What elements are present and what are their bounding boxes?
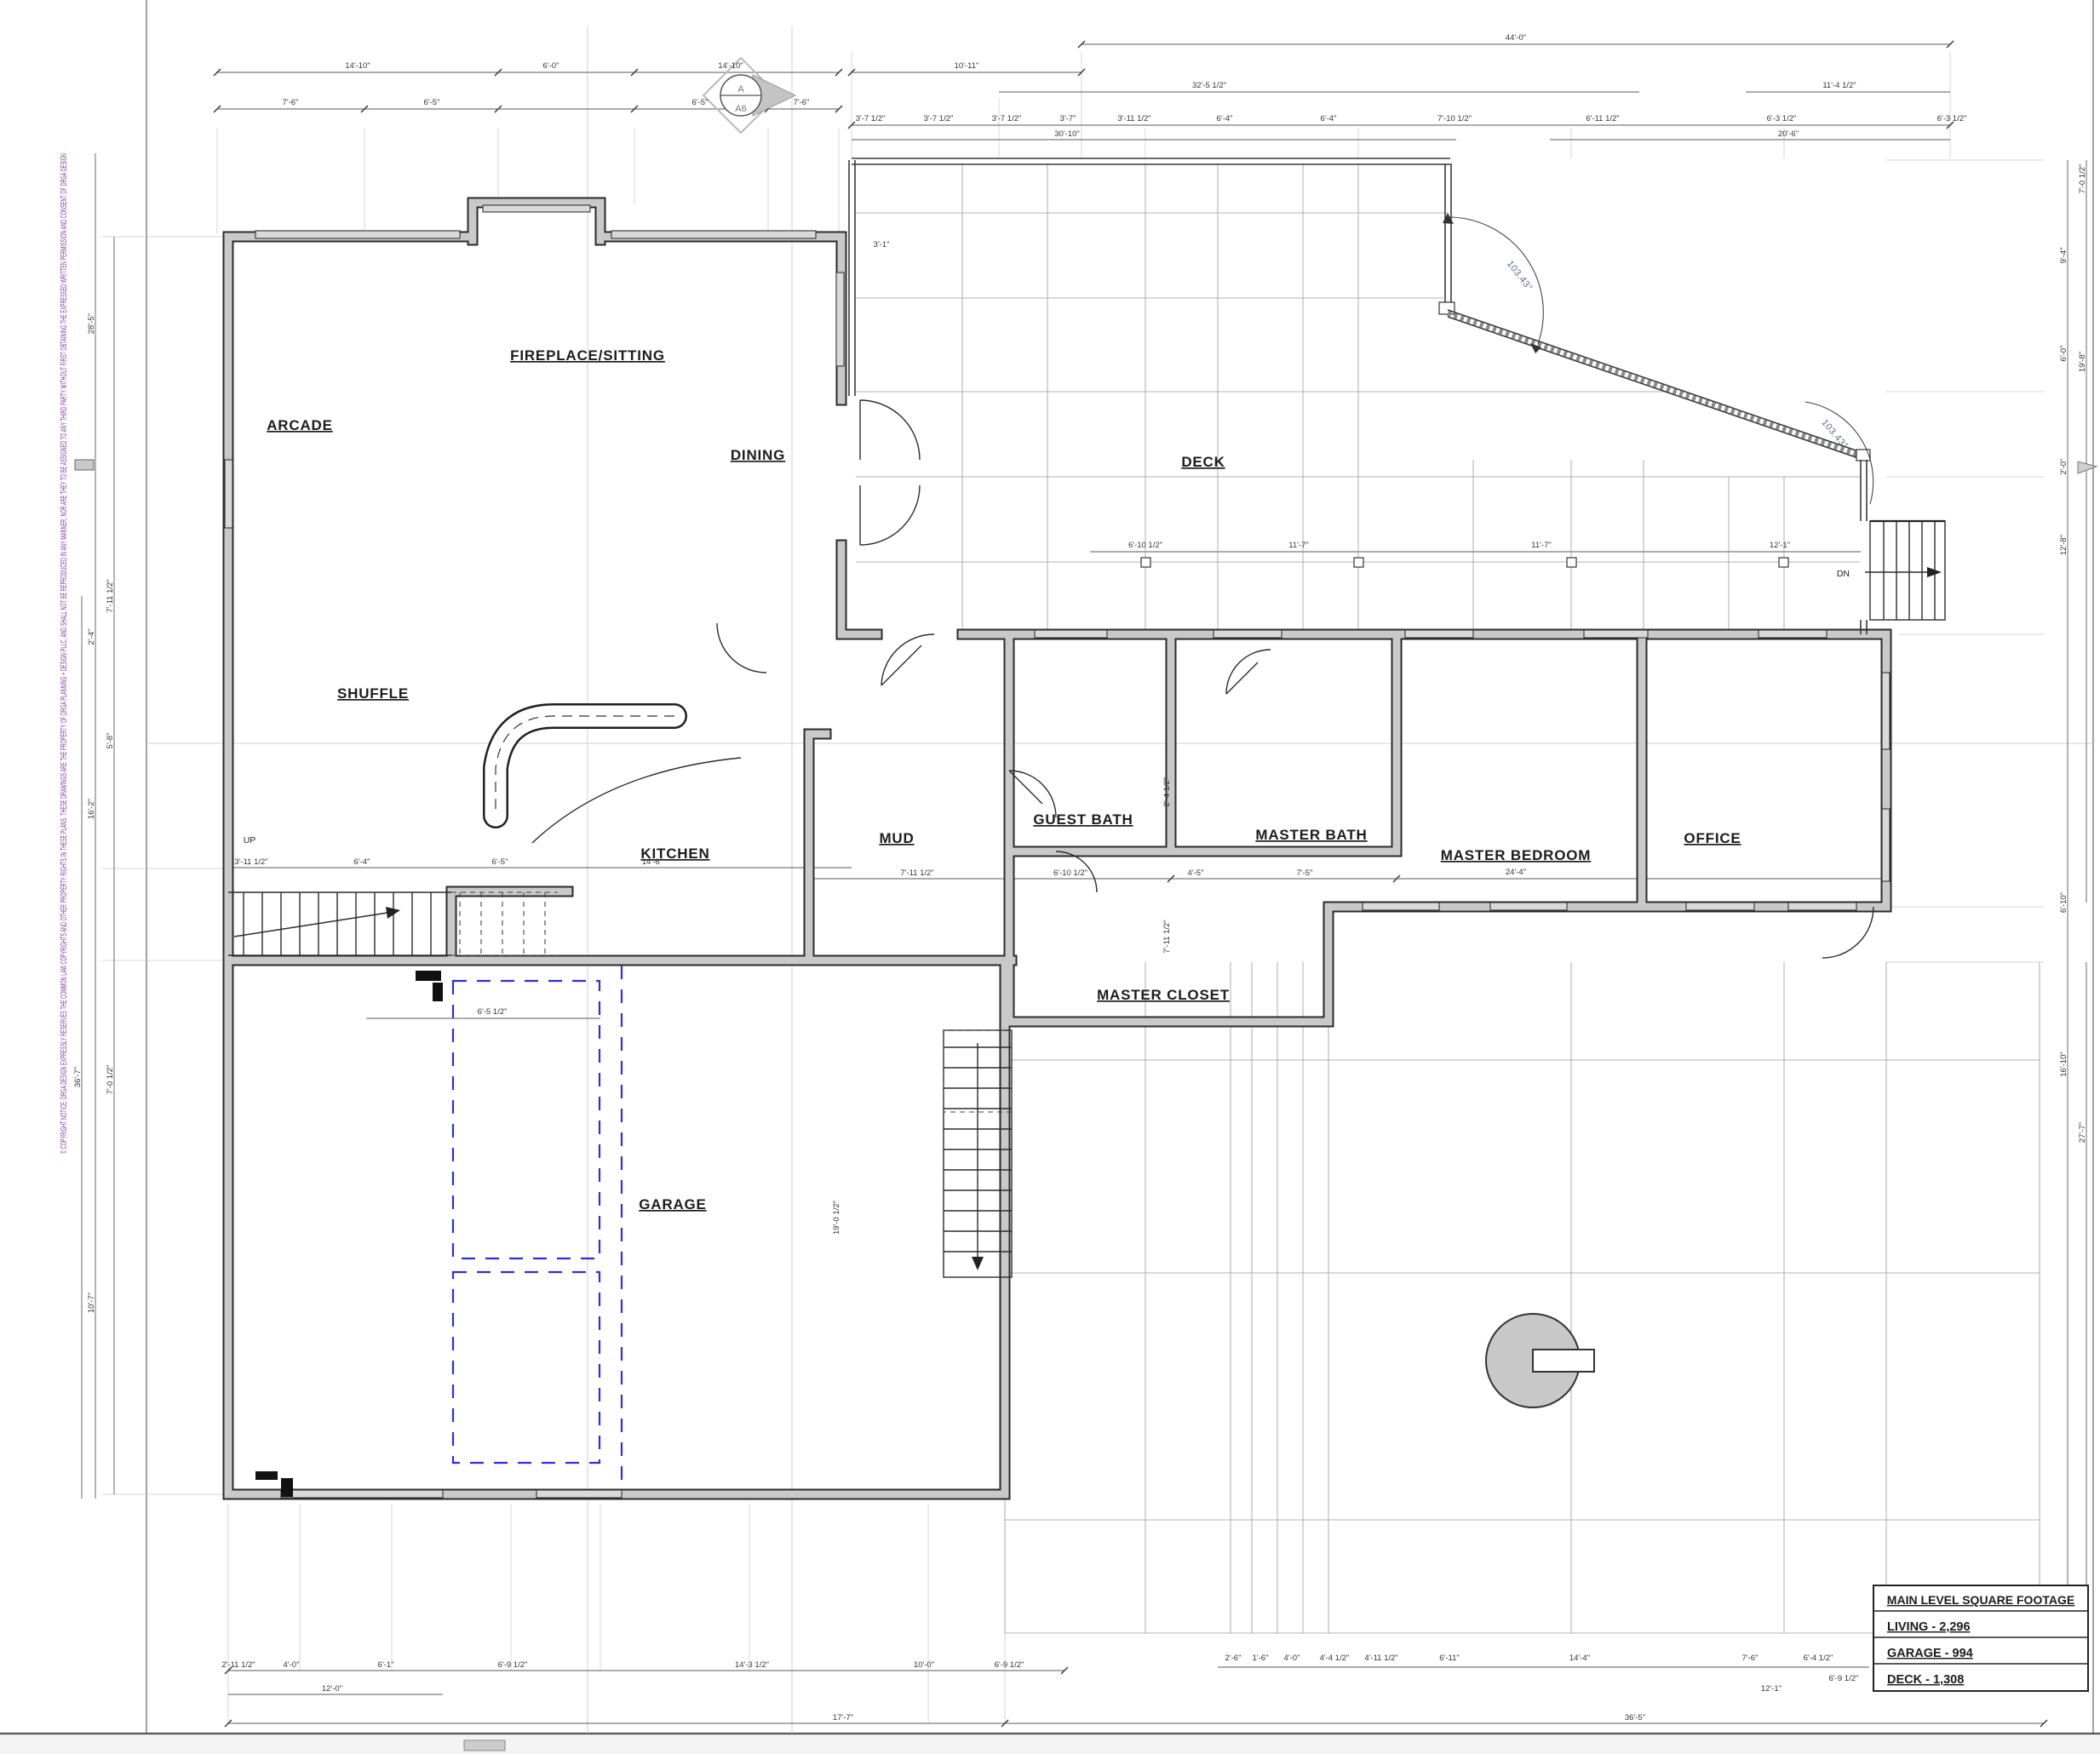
dim-label: 14'-3 1/2" [735,1660,769,1670]
room-label-master-bedroom: MASTER BEDROOM [1441,847,1591,863]
dim-label: 32'-5 1/2" [1192,81,1226,90]
dim-label: 2'-4 1/2" [1162,777,1172,807]
dim-label: 12'-8" [2059,535,2068,555]
dimension-extension-lines [102,51,2044,1723]
dimension-lines [82,41,2086,1727]
drawing-sheet: A A6 ARCADE FIREPLACE/SITTING DINING DEC… [0,0,2100,1754]
stair-up-label: UP [244,835,256,845]
dim-label: 3'-7 1/2" [924,114,954,123]
dim-label: 2'-11 1/2" [221,1660,255,1670]
dim-label: 7'-11 1/2" [106,579,115,612]
dim-label: 6'-10 1/2" [1053,868,1087,878]
dim-label: 24'-4" [1506,868,1526,877]
dim-label: 6'-10" [2059,892,2068,913]
dim-label: 6'-11 1/2" [1586,114,1619,123]
dim-label: 11'-7" [1288,541,1309,550]
plan-annotations: UP DN 103.43° 103.43° [244,259,1850,845]
dim-label: 30'-10" [1054,129,1079,139]
dim-label: 7'-11 1/2" [1162,920,1172,953]
dim-label: 5'-8" [106,733,115,749]
dim-label: 2'-6" [1225,1654,1242,1663]
dim-label: 16'-2" [87,799,96,819]
dim-label: 4'-0" [284,1660,300,1670]
footage-row-deck: DECK - 1,308 [1887,1673,1964,1687]
dim-label: 4'-4 1/2" [1320,1654,1350,1663]
room-label-fireplace-sitting: FIREPLACE/SITTING [510,347,665,364]
dim-label: 11'-4 1/2" [1822,81,1856,90]
room-label-master-closet: MASTER CLOSET [1097,987,1230,1003]
room-label-dining: DINING [731,447,785,463]
dim-label: 10'-7" [87,1293,96,1313]
dim-label: 6'-5" [424,98,440,107]
angle-callouts [1443,213,1873,504]
dim-label: 6'-9 1/2" [1829,1674,1859,1683]
dim-label: 14'-10" [718,61,743,71]
dim-label: 6'-9 1/2" [995,1660,1024,1670]
dim-label: 7'-11 1/2" [900,868,933,878]
dim-label: 1'-6" [1253,1654,1269,1663]
stair-dn-label: DN [1837,569,1850,579]
dim-label: 7'-6" [794,98,810,107]
dimension-labels: 14'-10" 6'-0" 14'-10" 10'-11" 44'-0" 7'-… [73,33,2087,1722]
edge-markers [75,460,2097,473]
copyright-notice: © COPYRIGHT NOTICE: DRGA DESIGN EXPRESSL… [59,153,69,1154]
dim-label: 3'-7" [1060,114,1076,123]
dim-label: 6'-5 1/2" [478,1007,508,1017]
dim-label: 6'-4 1/2" [1804,1654,1833,1663]
dim-label: 14'-6" [642,857,663,867]
dim-label: 6'-5" [492,857,508,867]
room-label-mud: MUD [879,830,914,846]
dim-label: 44'-0" [1506,33,1526,43]
dim-label: 4'-0" [1284,1654,1300,1663]
dim-label: 2'-0" [2059,459,2068,475]
room-label-office: OFFICE [1684,830,1741,846]
dim-label: 11'-7" [1531,541,1552,550]
dim-label: 7'-6" [283,98,299,107]
floor-plan-canvas: A A6 ARCADE FIREPLACE/SITTING DINING DEC… [0,0,2100,1754]
room-label-deck: DECK [1181,454,1225,470]
patio-grid [1005,962,2044,1633]
dim-label: 7'-10 1/2" [1437,114,1472,123]
deck-grid [856,163,1861,634]
entry-up-stair [228,892,558,955]
section-marker: A A6 [703,58,795,133]
room-label-shuffle: SHUFFLE [337,685,409,702]
car-space-2 [453,1272,600,1463]
dim-label: 12'-1" [1761,1684,1782,1694]
dim-label: 6'-1" [378,1660,394,1670]
fire-pit-symbol [1486,1314,1594,1407]
room-label-guest-bath: GUEST BATH [1033,811,1133,828]
dim-label: 6'-11" [1439,1654,1460,1663]
section-marker-letter: A [737,84,744,95]
footage-table-title: MAIN LEVEL SQUARE FOOTAGE [1887,1593,2074,1607]
dim-label: 14'-4" [1569,1654,1590,1663]
title-block-fragment [464,1740,505,1751]
dim-label: 20'-6" [1778,129,1799,139]
footage-row-garage: GARAGE - 994 [1887,1647,1973,1660]
dim-label: 6'-3 1/2" [1937,114,1967,123]
dim-label: 6'-4" [1217,114,1233,123]
dim-label: 3'-1" [874,240,890,249]
dim-label: 6'-0" [2059,346,2068,362]
dim-label: 6'-5" [692,98,709,107]
dim-label: 6'-0" [543,61,559,71]
dim-label: 36'-7" [73,1067,83,1087]
dim-label: 6'-3 1/2" [1767,114,1797,123]
dim-label: 27'-7" [2078,1122,2087,1143]
reference-grid [146,26,2093,1734]
dim-label: 7'-0 1/2" [106,1065,115,1095]
dim-label: 12'-0" [322,1684,342,1694]
door-swings [717,400,1873,958]
dim-label: 6'-4" [1321,114,1337,123]
dim-label: 10'-0" [914,1660,934,1670]
dim-label: 36'-5" [1625,1713,1645,1722]
square-footage-table: MAIN LEVEL SQUARE FOOTAGE LIVING - 2,296… [1873,1585,2088,1691]
dim-label: 12'-1" [1770,541,1790,550]
dim-label: 10'-11" [955,61,979,71]
car-space-1 [453,981,600,1258]
dim-label: 7'-6" [1742,1654,1759,1663]
room-label-garage: GARAGE [639,1196,706,1212]
dim-label: 4'-11 1/2" [1364,1654,1397,1663]
dim-label: 4'-5" [1188,868,1204,878]
dim-label: 3'-7 1/2" [992,114,1022,123]
dim-label: 19'-0 1/2" [832,1201,841,1235]
dim-label: 6'-9 1/2" [498,1660,528,1670]
dim-label: 2'-4" [87,629,96,645]
dim-label: 3'-7 1/2" [856,114,886,123]
dim-label: 14'-10" [345,61,370,71]
deck-down-stair [1865,521,1945,620]
dim-label: 6'-4" [354,857,370,867]
dim-label: 7'-5" [1297,868,1313,878]
room-label-arcade: ARCADE [267,417,333,433]
kitchen-island [496,716,741,843]
dim-label: 3'-11 1/2" [234,857,267,867]
dim-label: 3'-11 1/2" [1117,114,1150,123]
dim-label: 19'-8" [2078,352,2087,372]
section-marker-sheet: A6 [735,104,746,114]
dim-label: 7'-0 1/2" [2078,164,2087,194]
dim-label: 16'-10" [2059,1052,2068,1076]
room-label-master-bath: MASTER BATH [1255,827,1367,843]
dim-label: 17'-7" [833,1713,853,1722]
garage-details [255,966,622,1497]
footage-row-living: LIVING - 2,296 [1887,1620,1971,1634]
dim-label: 9'-4" [2059,248,2068,264]
dim-label: 28'-5" [87,313,96,334]
dim-label: 6'-10 1/2" [1128,541,1162,550]
